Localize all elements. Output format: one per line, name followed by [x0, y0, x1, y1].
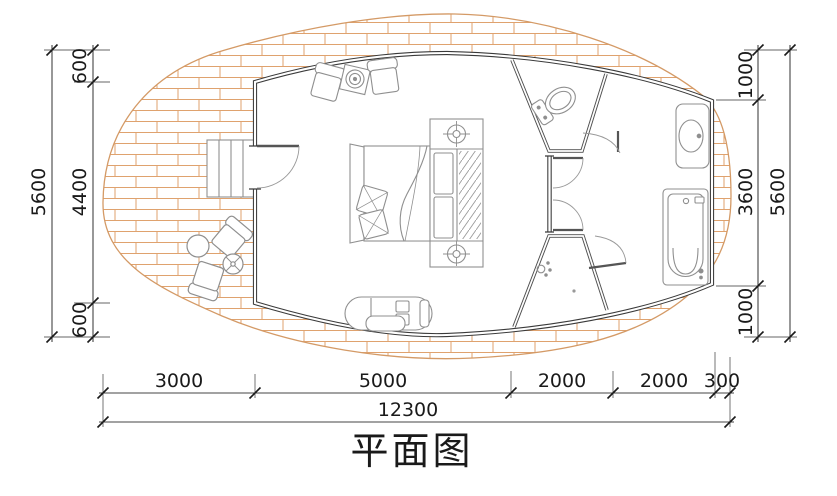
dim-bottom-2000-b: 2000	[640, 370, 688, 392]
dim-bottom-3000: 3000	[155, 370, 203, 392]
plant-table-icon	[339, 64, 370, 94]
floor-drain-icon	[572, 289, 575, 292]
dim-right-1000-bottom: 1000	[735, 288, 757, 336]
bathtub-icon	[663, 189, 708, 285]
bed-icon	[350, 144, 430, 243]
floor-plan-canvas: 600 4400 600 5600 1000 3600 1000 5600 30…	[0, 0, 837, 496]
dim-right-1000-top: 1000	[735, 51, 757, 99]
round-table-icon	[187, 235, 209, 257]
dim-bottom-300: 300	[704, 370, 740, 392]
dim-bottom-2000-a: 2000	[538, 370, 586, 392]
floor-plan-page: 600 4400 600 5600 1000 3600 1000 5600 30…	[0, 0, 837, 496]
dim-left-600-bottom: 600	[69, 302, 91, 338]
page-title: 平面图	[350, 429, 473, 473]
sink-icon	[676, 104, 709, 168]
dim-left-600-top: 600	[69, 48, 91, 84]
dim-right-3600: 3600	[735, 168, 757, 216]
desk-icon	[345, 297, 432, 331]
dim-bottom-5000: 5000	[359, 370, 407, 392]
small-table-icon	[223, 254, 243, 274]
dim-bottom-total: 12300	[378, 399, 438, 421]
bench	[366, 316, 405, 331]
entry-steps	[207, 140, 255, 197]
pillow	[358, 209, 388, 239]
dim-left-total: 5600	[28, 168, 50, 216]
dim-right-total: 5600	[767, 168, 789, 216]
hanger-hatch	[459, 151, 481, 239]
wardrobe-icon	[430, 119, 483, 267]
dim-left-4400: 4400	[69, 168, 91, 216]
